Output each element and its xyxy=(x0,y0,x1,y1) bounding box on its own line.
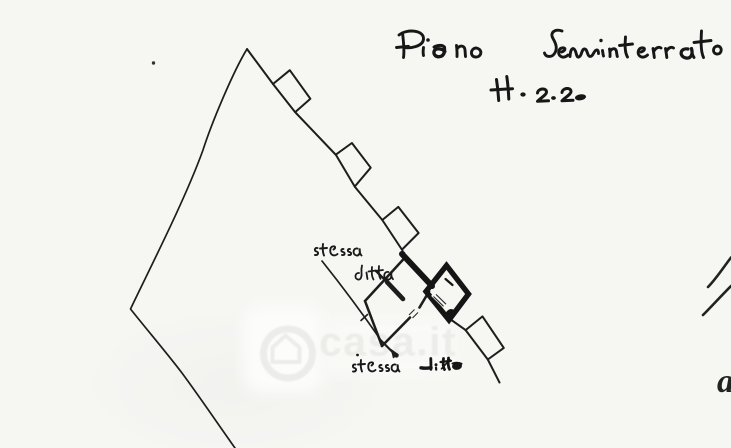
svg-text:a: a xyxy=(717,363,731,400)
